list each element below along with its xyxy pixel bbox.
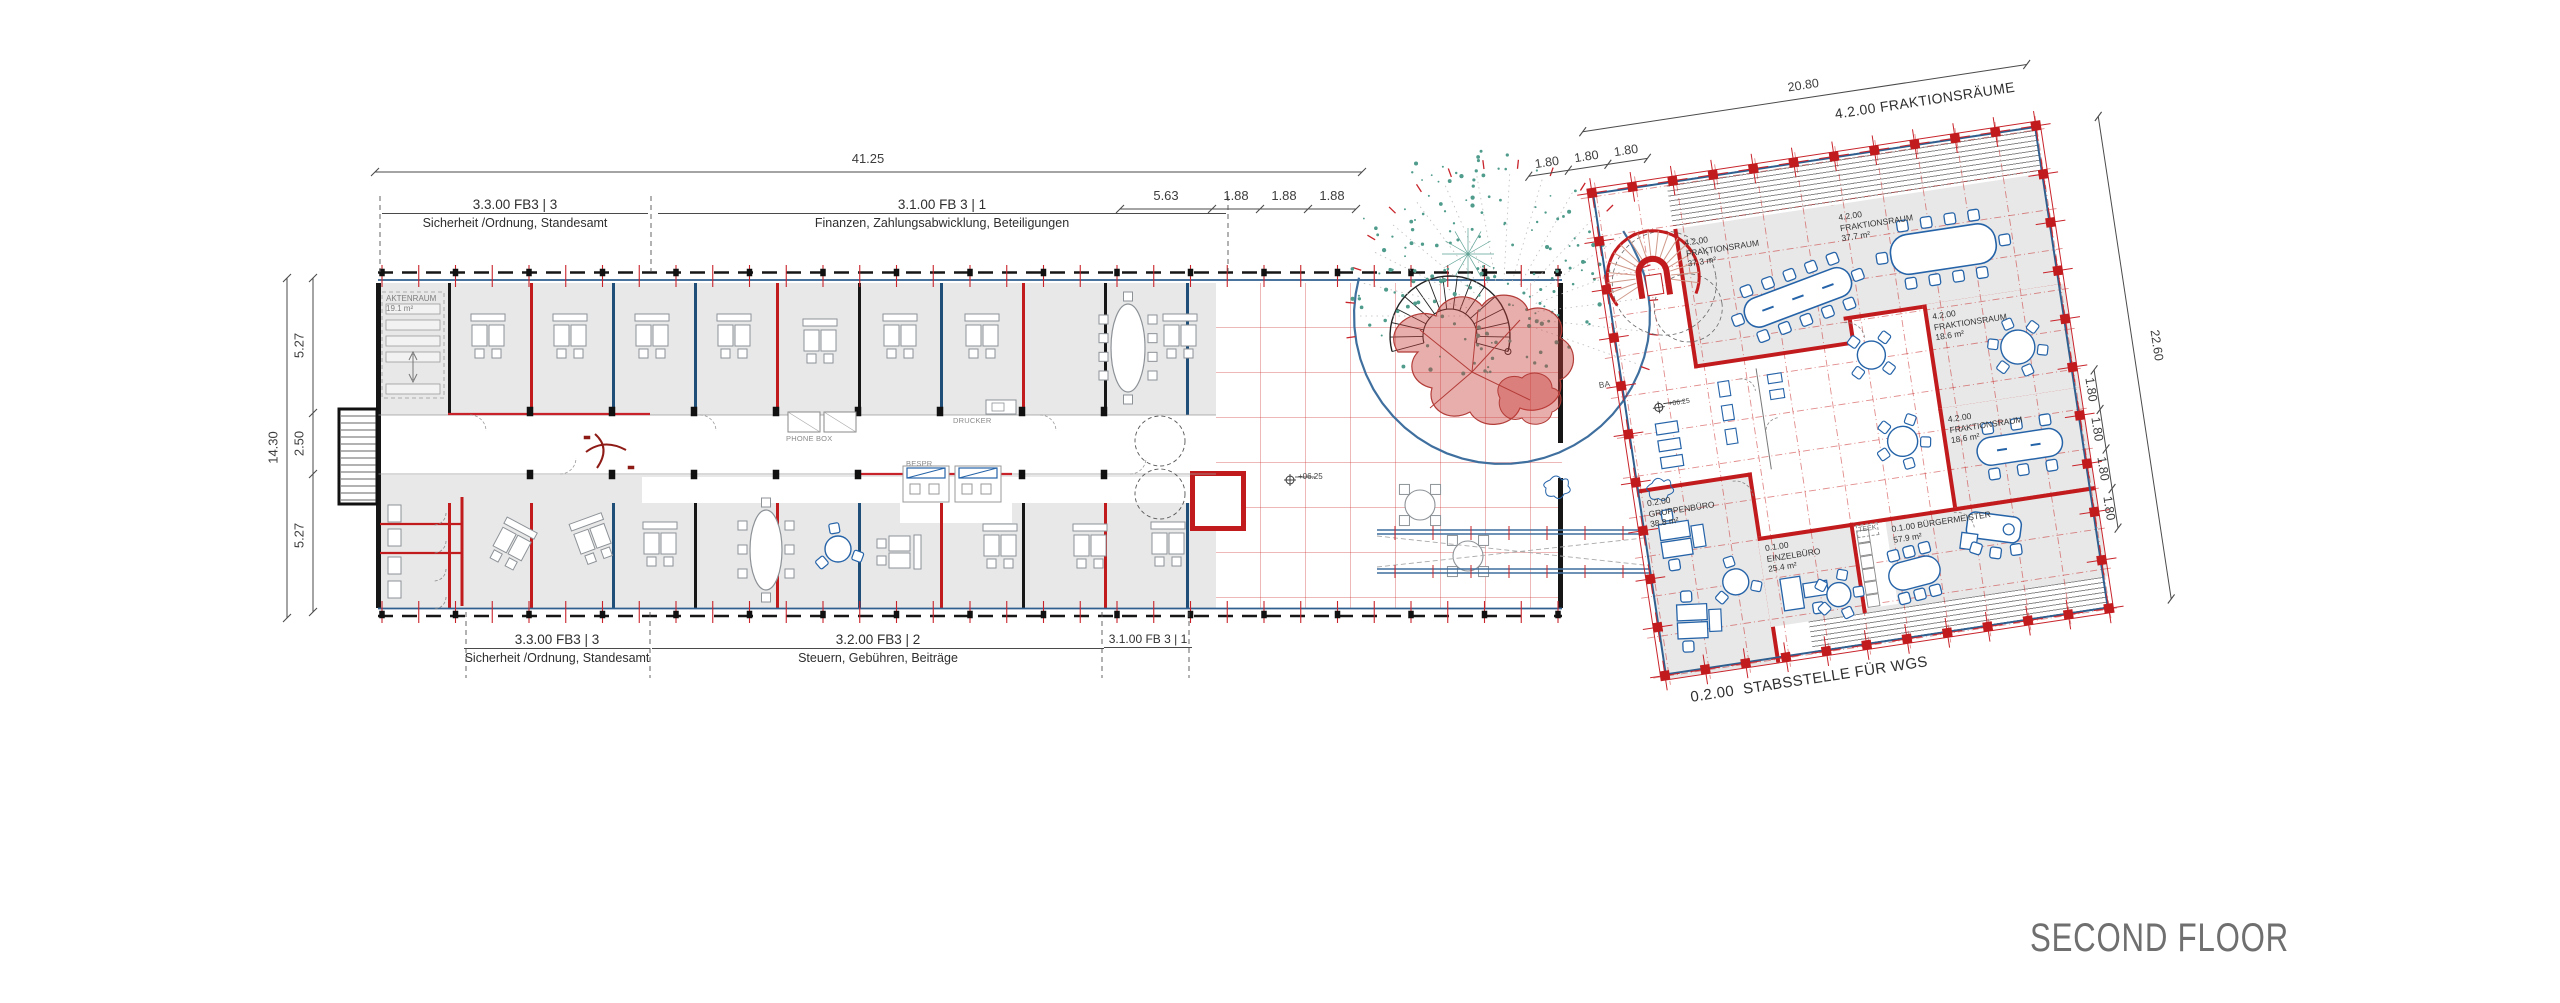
plan-linework (883, 314, 917, 321)
plan-linework (1411, 228, 1414, 231)
plan-linework (894, 611, 899, 618)
plan-linework (1677, 604, 1708, 621)
plan-linework (1404, 208, 1406, 210)
plan-linework (821, 330, 836, 351)
plan-linework (1668, 559, 1681, 572)
plan-linework (527, 470, 533, 479)
plan-linework (472, 325, 487, 346)
plan-linework (1976, 266, 1989, 279)
plan-linework (1638, 526, 1648, 536)
plan-linework (2038, 169, 2048, 179)
plan-linework (388, 505, 401, 522)
plan-linework (1987, 339, 1998, 350)
zone-code: 3.2.00 FB3 | 2 (652, 632, 1104, 649)
plan-linework (1799, 313, 1813, 327)
page-title: SECOND FLOOR (2030, 916, 2289, 961)
plan-linework (639, 349, 648, 358)
plan-linework (1616, 381, 1626, 391)
plan-linework (1409, 269, 1414, 276)
plan-linework (1262, 611, 1267, 618)
plan-linework (1748, 163, 1758, 173)
grid-axis-label: BA (1598, 379, 1611, 391)
plan-linework (1099, 334, 1108, 343)
plan-linework (1781, 652, 1791, 662)
plan-linework (1091, 535, 1106, 556)
plan-linework (585, 553, 597, 565)
plan-linework (901, 325, 916, 346)
plan-linework (804, 330, 819, 351)
plan-linework (527, 269, 532, 276)
plan-linework (386, 336, 440, 346)
plan-linework (721, 349, 730, 358)
desk-cluster (1163, 314, 1197, 358)
plan-linework (829, 523, 841, 535)
plan-linework (1660, 670, 1670, 680)
plan-linework (656, 349, 665, 358)
plan-linework (894, 269, 899, 276)
plan-linework (2039, 414, 2052, 427)
plan-linework (2097, 555, 2107, 565)
plan-linework (380, 611, 385, 618)
zone-top-finanzen: 3.1.00 FB 3 | 1 Finanzen, Zahlungsabwick… (658, 197, 1226, 230)
plan-linework (1847, 335, 1861, 349)
plan-linework (1942, 628, 1952, 638)
plan-linework (1623, 429, 1633, 439)
plan-linework (785, 569, 794, 578)
plan-linework (2026, 320, 2040, 334)
plan-linework (1347, 337, 1356, 338)
plan-linework (1876, 252, 1889, 265)
plan-linework (1789, 157, 1799, 167)
plan-linework (1115, 269, 1120, 276)
desk-cluster (877, 535, 921, 569)
plan-linework (1135, 469, 1185, 519)
plan-linework (1610, 259, 1637, 275)
plan-linework (815, 555, 829, 569)
plan-linework (470, 415, 486, 431)
plan-linework (1335, 611, 1340, 618)
plan-linework (1756, 329, 1770, 343)
plan-linework (1411, 171, 1413, 173)
plan-linework (557, 349, 566, 358)
plan-linework (2037, 344, 2048, 355)
plan-linework (636, 325, 651, 346)
plan-linework (1172, 557, 1181, 566)
plan-linework (747, 269, 752, 276)
plan-linework (691, 407, 697, 416)
plan-linework (904, 349, 913, 358)
desk-cluster (1073, 524, 1107, 568)
plan-linework (1898, 592, 1911, 605)
plan-linework (1351, 267, 1355, 271)
desk-cluster (883, 314, 917, 358)
plan-linework (1721, 567, 1751, 597)
plan-linework (1421, 243, 1424, 246)
plan-linework (738, 545, 747, 554)
plan-linework (1855, 339, 1887, 371)
plan-linework (664, 557, 673, 566)
plan-linework (1631, 477, 1641, 487)
plan-linework (785, 521, 794, 530)
plan-linework (609, 470, 615, 479)
plan-linework (825, 536, 851, 562)
plan-linework (1708, 170, 1718, 180)
plan-linework (1882, 361, 1896, 375)
plan-linework (489, 325, 504, 346)
plan-linework (1115, 611, 1120, 618)
plan-linework (1983, 622, 1993, 632)
plan-linework (1409, 220, 1413, 224)
plan-linework (1691, 524, 1706, 548)
plan-linework (735, 325, 750, 346)
plan-linework (1944, 213, 1957, 226)
dim-seg-188c: 1.88 (1308, 188, 1356, 203)
plan-linework (1608, 279, 1636, 284)
plan-linework (1040, 415, 1056, 431)
plan-linework (877, 539, 886, 548)
plan-linework (661, 533, 676, 554)
plan-linework (1004, 559, 1013, 568)
plan-linework (889, 553, 910, 568)
plan-linework (1862, 568, 1876, 582)
plan-linework (773, 470, 779, 479)
plan-linework (1360, 305, 1364, 309)
plan-linework (1969, 541, 1983, 555)
plan-linework (1733, 479, 1753, 499)
plan-linework (718, 325, 733, 346)
plan-linework (1412, 279, 1416, 283)
plan-linework (1164, 325, 1179, 346)
plan-linework (1148, 315, 1157, 324)
plan-linework (1163, 314, 1197, 321)
plan-linework (1416, 301, 1420, 305)
plan-linework (1770, 389, 1785, 400)
plan-linework (1383, 319, 1386, 322)
plan-linework (1860, 555, 1874, 569)
plan-linework (851, 550, 864, 563)
level-marker-left: +06.25 (1298, 472, 1323, 481)
plan-linework (1725, 428, 1738, 444)
plan-linework (1384, 288, 1388, 292)
plan-linework (560, 458, 576, 474)
zone-bottom-sicherheit: 3.3.00 FB3 | 3 Sicherheit /Ordnung, Stan… (464, 632, 650, 665)
plan-linework (1902, 545, 1915, 558)
plan-linework (1804, 260, 1818, 274)
plan-linework (1167, 349, 1176, 358)
plan-linework (1825, 581, 1852, 608)
sketch-mark (586, 434, 626, 468)
plan-linework (1124, 395, 1133, 404)
plan-linework (1367, 235, 1375, 240)
plan-linework (1627, 182, 1637, 192)
plan-linework (1853, 586, 1864, 597)
plan-linework (738, 569, 747, 578)
plan-linework (1677, 622, 1708, 639)
plan-linework (1841, 606, 1854, 619)
plan-linework (600, 611, 605, 618)
plan-linework (1184, 349, 1193, 358)
plan-linework (2060, 314, 2070, 324)
plan-linework (910, 484, 920, 494)
plan-linework (1414, 219, 1416, 221)
plan-linework (1363, 218, 1365, 220)
plan-linework (1866, 594, 1880, 608)
plan-linework (1782, 268, 1796, 282)
plan-linework (571, 325, 586, 346)
plan-linework (1668, 176, 1678, 186)
plan-linework (1905, 277, 1918, 290)
plan-linework (1741, 658, 1751, 668)
room-area: 19.1 m² (386, 304, 436, 314)
plan-linework (1671, 271, 1699, 277)
plan-linework (635, 314, 669, 321)
zone-code: 3.1.00 FB 3 | 1 (1104, 632, 1192, 648)
plan-linework (1148, 352, 1157, 361)
right-building: 4.2.00 FRAKTIONSRAUM 37.3 m² 4.2.00 FRAK… (1592, 126, 2109, 676)
plan-linework (1376, 233, 1379, 236)
plan-linework (1396, 309, 1400, 313)
desk-cluster (471, 314, 505, 358)
plan-linework (453, 269, 458, 276)
plan-linework (1413, 269, 1416, 272)
plan-linework (2010, 543, 2022, 555)
plan-linework (471, 314, 505, 321)
plan-linework (2017, 463, 2030, 476)
plan-linework (1647, 231, 1652, 259)
plan-linework (1761, 276, 1775, 290)
plan-linework (966, 325, 981, 346)
plan-linework (1989, 547, 2001, 559)
plan-linework (1836, 569, 1847, 580)
plan-linework (983, 325, 998, 346)
desk-cluster (717, 314, 751, 358)
plan-linework (1913, 588, 1926, 601)
plan-linework (647, 557, 656, 566)
plan-linework (1739, 377, 1755, 393)
floor-plan-canvas: 41.25 5.63 1.88 1.88 1.88 14.30 5.27 2.5… (0, 0, 2560, 1003)
plan-linework (824, 354, 833, 363)
plan-linework (962, 484, 972, 494)
plan-linework (1431, 516, 1441, 526)
plan-linework (553, 314, 587, 321)
plan-linework (1671, 275, 1699, 287)
zone-name: Steuern, Gebühren, Beiträge (798, 649, 958, 665)
plan-linework (2067, 362, 2077, 372)
dim-left-total-width: 41.25 (818, 151, 918, 166)
plan-linework (762, 593, 771, 602)
plan-linework (1358, 297, 1361, 300)
desk-cluster (965, 314, 999, 358)
plan-linework (889, 536, 910, 551)
plan-linework (1996, 360, 2010, 374)
dim-left-total-height: 14.30 (266, 418, 281, 478)
plan-linework (1135, 416, 1185, 466)
plan-linework (1094, 559, 1103, 568)
fraktions-table-1 (1722, 245, 1873, 349)
plan-linework (762, 498, 771, 507)
room-label-aktenraum: AKTENRAUM 19.1 m² (386, 294, 436, 313)
plan-linework (1952, 270, 1965, 283)
dim-seg-188b: 1.88 (1260, 188, 1308, 203)
plan-linework (1638, 233, 1647, 261)
plan-linework (1099, 352, 1108, 361)
plan-linework (1381, 334, 1383, 336)
plan-linework (584, 436, 590, 439)
plan-linework (490, 550, 502, 562)
plan-linework (1393, 291, 1395, 293)
plan-linework (1389, 207, 1395, 213)
plan-linework (1587, 188, 1597, 198)
plan-linework (1653, 622, 1663, 632)
desk-cluster (569, 513, 616, 566)
conference-table (750, 510, 782, 590)
plan-linework (1904, 413, 1917, 426)
plan-linework (2089, 507, 2099, 517)
plan-linework (1368, 323, 1371, 326)
desk-cluster (983, 524, 1017, 568)
plan-linework (1262, 269, 1267, 276)
zone-name: Sicherheit /Ordnung, Standesamt (423, 214, 608, 230)
plan-linework (2104, 603, 2114, 613)
plan-linework (2023, 615, 2033, 625)
plan-linework (1431, 484, 1441, 494)
plan-linework (1101, 407, 1107, 416)
plan-linework (1660, 454, 1683, 468)
plan-linework (453, 611, 458, 618)
plan-linework (2021, 363, 2034, 376)
plan-linework (1148, 334, 1157, 343)
plan-linework (1998, 234, 2011, 247)
plan-linework (738, 349, 747, 358)
plan-linework (1073, 524, 1107, 531)
plan-linework (747, 611, 752, 618)
plan-linework (1851, 366, 1865, 380)
plan-linework (1886, 424, 1920, 458)
plan-linework (1101, 470, 1107, 479)
plan-linework (1074, 535, 1089, 556)
plan-linework (691, 470, 697, 479)
plan-linework (1950, 133, 1960, 143)
desk-cluster (803, 319, 837, 363)
plan-linework (1731, 313, 1745, 327)
mayor-meeting-table (1882, 540, 1946, 606)
plan-linework (1910, 139, 1920, 149)
plan-linework (527, 611, 532, 618)
plan-linework (1124, 292, 1133, 301)
plan-linework (1709, 609, 1722, 632)
plan-linework (388, 557, 401, 574)
plan-linework (1151, 522, 1185, 529)
dim-seg-527a: 5.27 (292, 319, 307, 373)
plan-linework (1877, 447, 1891, 461)
plan-linework (1869, 145, 1879, 155)
plan-linework (1413, 301, 1417, 305)
plan-linework (1019, 470, 1025, 479)
plan-linework (1152, 533, 1167, 554)
plan-linework (2063, 609, 2073, 619)
plan-linework (1351, 297, 1355, 301)
plan-linework (609, 407, 615, 416)
plan-linework (386, 384, 440, 394)
plan-linework (1683, 641, 1694, 652)
plan-linework (1041, 269, 1046, 276)
plan-linework (1155, 557, 1164, 566)
plan-linework (1358, 295, 1360, 297)
plan-linework (388, 581, 401, 598)
plan-linework (674, 611, 679, 618)
room-name: AKTENRAUM (386, 294, 436, 304)
plan-linework (877, 556, 886, 565)
plan-linework (1718, 381, 1731, 397)
desk-cluster (1151, 522, 1185, 566)
plan-linework (1399, 516, 1409, 526)
plan-linework (2045, 217, 2055, 227)
plan-linework (1378, 272, 1380, 274)
plan-linework (1929, 584, 1942, 597)
zone-bottom-steuern: 3.2.00 FB3 | 2 Steuern, Gebühren, Beiträ… (652, 632, 1104, 665)
plan-linework (1821, 305, 1835, 319)
plan-linework (1877, 330, 1891, 344)
plan-linework (574, 349, 583, 358)
plan-linework (1864, 581, 1878, 595)
plan-linework (1645, 274, 1664, 296)
plan-linework (1169, 533, 1184, 554)
plan-linework (983, 524, 1017, 531)
plan-linework (1041, 611, 1046, 618)
plan-linework (674, 269, 679, 276)
plan-linework (968, 269, 973, 276)
plan-linework (1858, 542, 1872, 556)
dim-seg-527b: 5.27 (292, 509, 307, 563)
plan-linework (1829, 151, 1839, 161)
plan-linework (1723, 556, 1736, 569)
desk-cluster (553, 314, 587, 358)
plan-linework (965, 314, 999, 321)
zone-name: Sicherheit /Ordnung, Standesamt (465, 649, 650, 665)
plan-linework (492, 349, 501, 358)
plan-linework (981, 484, 991, 494)
plan-linework (1001, 535, 1016, 556)
plan-linework (884, 325, 899, 346)
plan-linework (600, 269, 605, 276)
plan-linework (1655, 421, 1678, 435)
plan-linework (1019, 407, 1025, 416)
plan-linework (1077, 559, 1086, 568)
plan-linework (1750, 580, 1762, 592)
plan-linework (1404, 247, 1406, 249)
plan-linework (1609, 333, 1619, 343)
plan-linework (1389, 268, 1392, 271)
plan-linework (1645, 574, 1655, 584)
plan-linework (987, 559, 996, 568)
plan-linework (1918, 541, 1931, 554)
plan-linework (914, 535, 921, 569)
plan-linework (434, 541, 446, 553)
plan-linework (1404, 255, 1406, 257)
plan-linework (1099, 315, 1108, 324)
plan-linework (434, 569, 446, 581)
plan-linework (1658, 438, 1681, 452)
plan-linework (1661, 538, 1693, 558)
plan-linework (986, 349, 995, 358)
desk-cluster (487, 517, 538, 572)
plan-linework (969, 349, 978, 358)
plan-linework (855, 470, 861, 479)
plan-linework (1581, 128, 2048, 199)
zone-name: Finanzen, Zahlungsabwicklung, Beteiligun… (815, 214, 1069, 230)
plan-linework (601, 547, 613, 559)
plan-linework (1721, 404, 1734, 420)
